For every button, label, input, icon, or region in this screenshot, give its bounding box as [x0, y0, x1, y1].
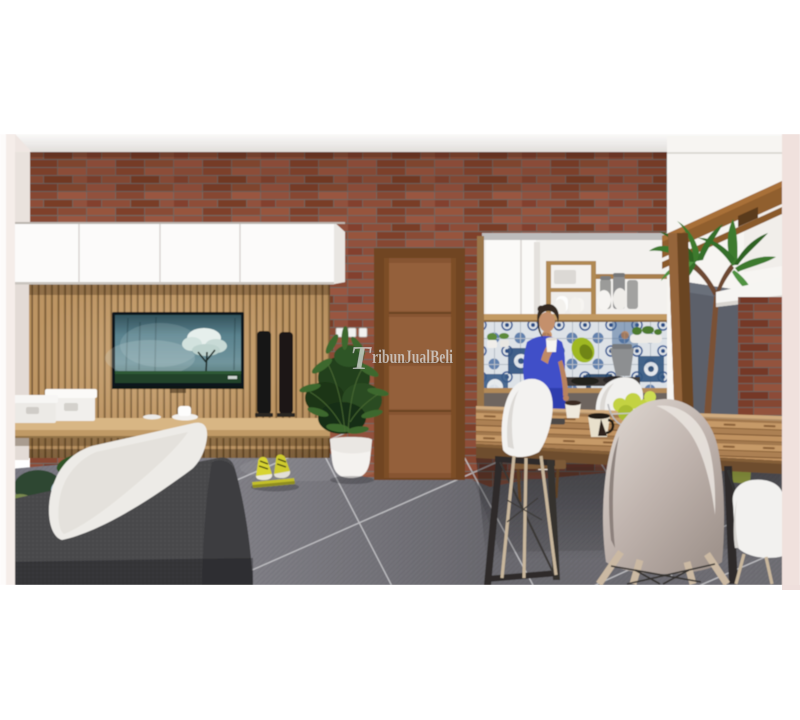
svg-text:ribunJualBeli: ribunJualBeli	[372, 347, 453, 368]
svg-text:T: T	[350, 340, 372, 377]
